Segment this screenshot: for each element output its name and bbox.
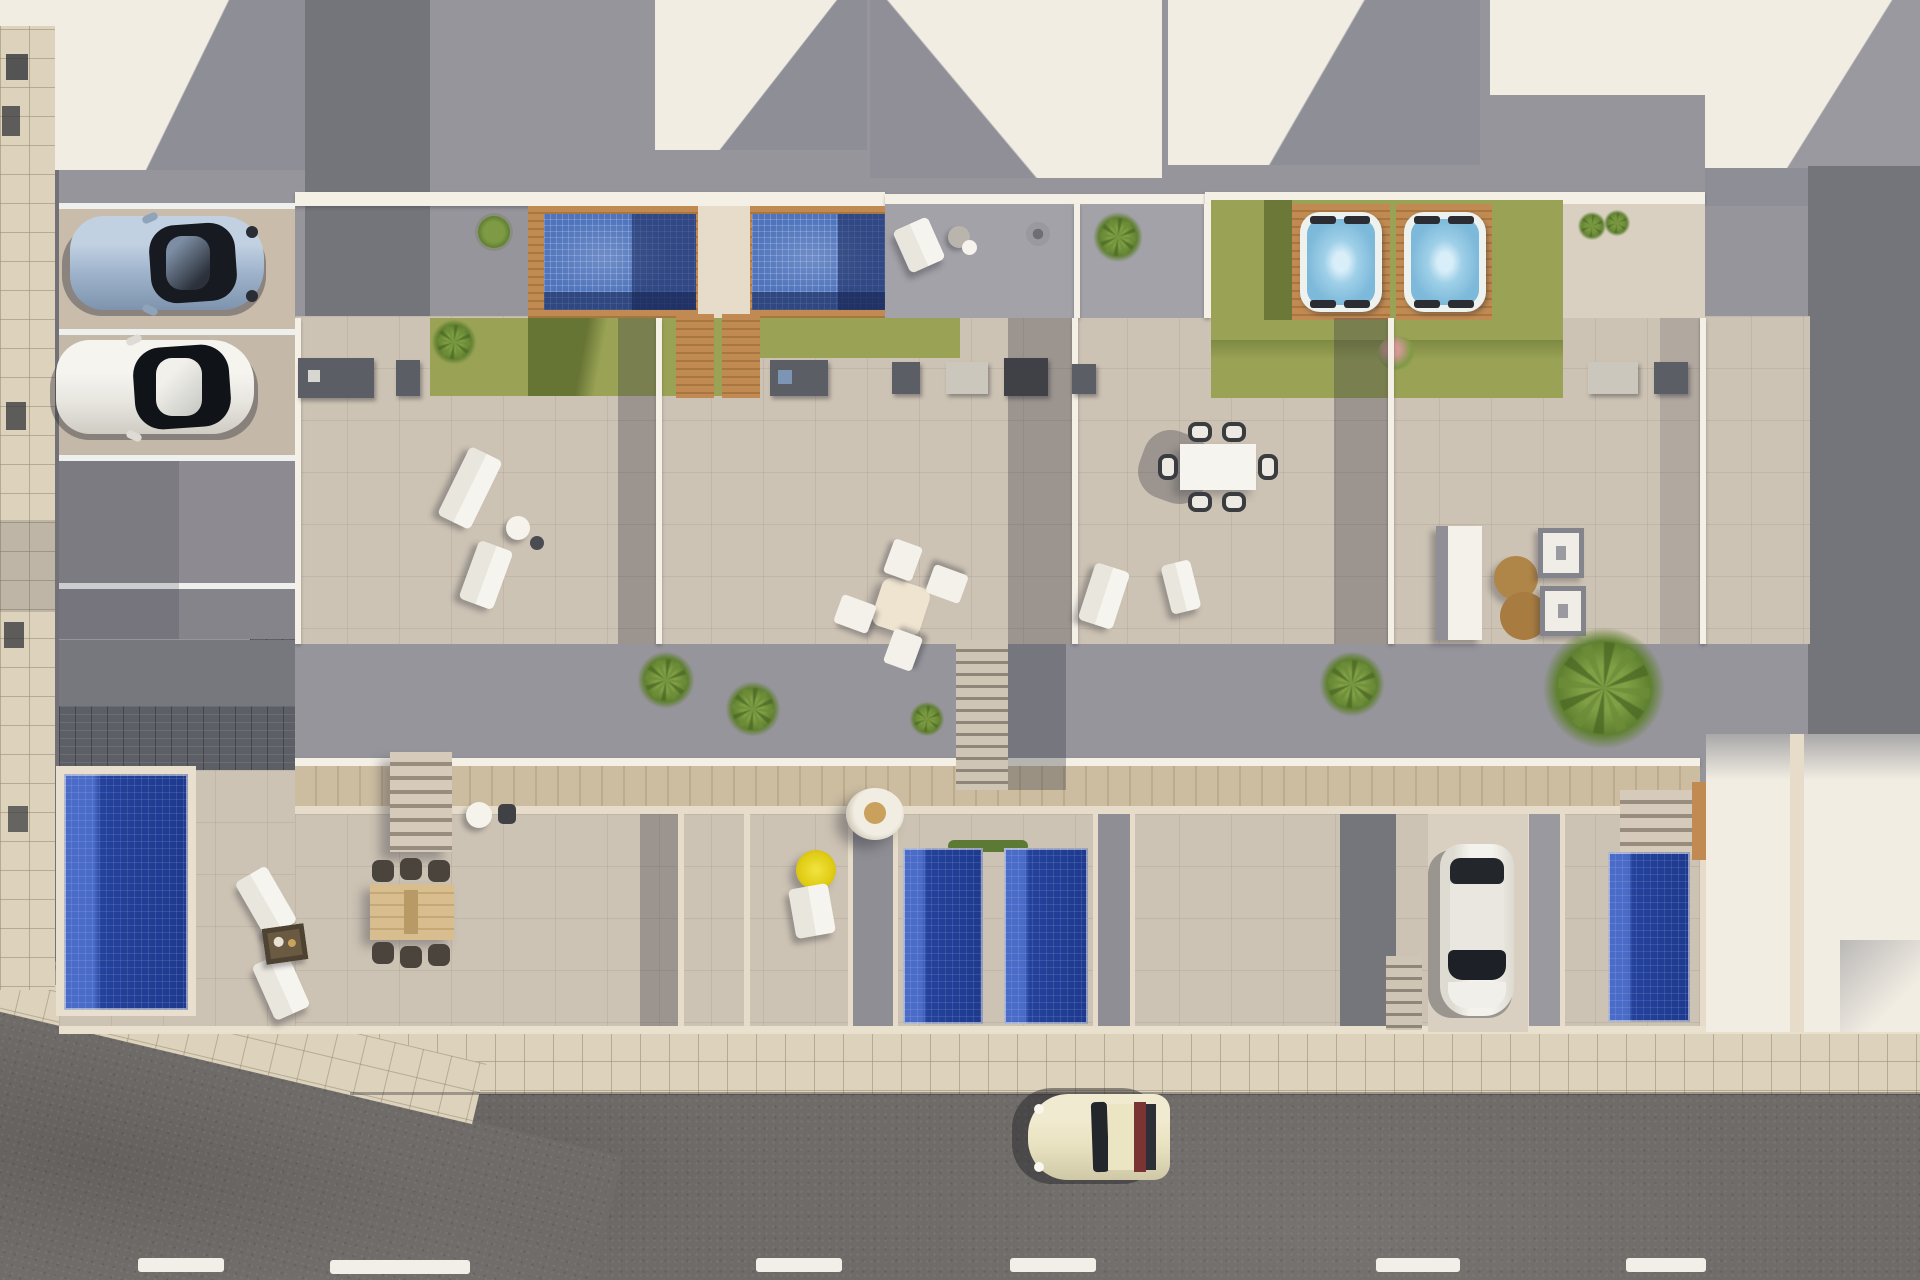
jacuzzi-headrest [1414, 216, 1440, 224]
lane-dash [1010, 1258, 1096, 1272]
kitchen-sink [778, 370, 792, 384]
left-patio-pavers [59, 706, 295, 772]
wall-shadow [0, 520, 55, 612]
roof-block-e [1490, 0, 1705, 95]
egg-chair-cushion [864, 802, 886, 824]
bistro-table [466, 802, 492, 828]
court-wall [678, 814, 684, 1026]
wall-vent [8, 806, 28, 832]
lawn-stairs [722, 314, 760, 398]
small-palm [1604, 210, 1630, 236]
stall-line [59, 329, 295, 335]
dining-chair [1222, 422, 1246, 442]
table-runner [404, 890, 418, 934]
stairs [390, 752, 452, 852]
terrace-bush [478, 216, 510, 248]
dining-chair [1188, 492, 1212, 512]
wall-vent [2, 106, 20, 136]
divider-wall-3-4 [1388, 318, 1394, 644]
jacuzzi-headrest [1310, 300, 1336, 308]
dining-chair [925, 564, 969, 605]
court-wall [1130, 814, 1135, 1026]
palm-plant [1320, 652, 1384, 716]
car-roof [156, 358, 202, 416]
jacuzzi-headrest [1414, 300, 1440, 308]
lane-dash [1626, 1258, 1706, 1272]
neighbor-channel [1790, 734, 1804, 1032]
roof-white-disc [962, 240, 977, 255]
court-shadow [640, 814, 678, 1026]
court-wall [893, 814, 898, 1026]
parking-shadow [59, 461, 179, 639]
dining-set-unit3 [1140, 414, 1270, 520]
court-passage [850, 814, 896, 1026]
court-wall [1093, 814, 1098, 1026]
roof-block-a [55, 0, 305, 170]
jacuzzi-headrest [1448, 216, 1474, 224]
wicker-chair [428, 860, 450, 882]
wicker-chair [372, 860, 394, 882]
court-passage [1526, 814, 1562, 1026]
dining-chair [883, 628, 924, 672]
roof-block-dark [305, 0, 430, 316]
car-hood [1448, 982, 1506, 1008]
neighbor-corner-shade [1840, 940, 1920, 1032]
jacuzzi-lawn-shadow [1264, 200, 1292, 320]
palm-plant [910, 702, 944, 736]
stall-line [59, 203, 295, 209]
hanging-egg-chair [846, 788, 904, 840]
divider-shadow-1-2 [618, 318, 658, 644]
roof-block-b [655, 0, 867, 150]
dining-chair [1222, 492, 1246, 512]
dining-chair [1188, 422, 1212, 442]
aerial-render [0, 0, 1920, 1280]
sidewalk [350, 1032, 1920, 1094]
dining-chair [1158, 454, 1178, 480]
outdoor-kitchen [1588, 362, 1638, 394]
palm-plant [638, 652, 694, 708]
lane-dash [138, 1258, 224, 1272]
small-palm [1578, 212, 1606, 240]
wood-dining-table [370, 884, 454, 940]
wicker-chair [400, 946, 422, 968]
canopy-chair [1538, 528, 1584, 578]
tray-cup [273, 936, 284, 947]
left-boundary-wall [0, 0, 55, 990]
left-wall-cap [0, 0, 55, 26]
car-headlight [1034, 1162, 1044, 1172]
roof-block-right [1705, 0, 1920, 170]
jacuzzi-water [1411, 219, 1479, 305]
wicker-chair [400, 858, 422, 880]
outdoor-kitchen [298, 358, 374, 398]
planter-pot [530, 536, 544, 550]
divider-shadow-3-4 [1334, 318, 1388, 644]
lane-dash [1376, 1258, 1460, 1272]
car-windshield [1091, 1102, 1109, 1173]
sun-lounger [788, 883, 836, 939]
roof-firepit [1026, 222, 1050, 246]
roof-bush [1094, 212, 1142, 262]
left-patio-dark [59, 640, 295, 712]
bbq-grill [396, 360, 420, 396]
dining-table [869, 575, 932, 638]
court-wall [848, 814, 853, 1026]
car-rear-stripe [1134, 1102, 1146, 1172]
car-roof [1108, 1104, 1134, 1170]
neighbor-shadow [1706, 734, 1920, 780]
lawn-stairs [676, 314, 714, 398]
side-table [506, 516, 530, 540]
jacuzzi-2 [1404, 212, 1486, 312]
parked-car-silver [70, 214, 264, 314]
wicker-chair [428, 944, 450, 966]
car-headlight [1034, 1104, 1044, 1114]
wall-vent [6, 54, 28, 80]
front-boundary-wall [59, 1026, 1920, 1034]
divider-wall-1-2 [656, 318, 662, 644]
court-wall [744, 814, 750, 1026]
outdoor-kitchen [946, 362, 988, 394]
canopy-chair [1540, 586, 1586, 636]
bbq-grill [892, 362, 920, 394]
plunge-pool [64, 774, 188, 1010]
wall-vent [6, 402, 26, 430]
dining-chair [883, 538, 924, 582]
car-roof [1450, 884, 1504, 950]
glass-kitchen-module [1004, 358, 1048, 396]
car-rear-window [1146, 1104, 1156, 1170]
court-wall [1560, 814, 1565, 1026]
roof-lawn-unit2 [745, 318, 960, 358]
bbq-grill [1654, 362, 1688, 394]
jacuzzi-headrest [1448, 300, 1474, 308]
dining-table [1180, 444, 1256, 490]
plunge-pool [1004, 848, 1088, 1024]
plunge-pool [1608, 852, 1690, 1022]
rooftop-pool-2-dark-end [752, 292, 902, 310]
stairs [956, 640, 1008, 790]
jacuzzi-headrest [1344, 216, 1370, 224]
parked-car-white [56, 338, 254, 438]
roof-block-c [870, 0, 1162, 178]
side-table-tray [262, 923, 309, 964]
unit4-right-wall [1700, 318, 1706, 644]
dining-chair [833, 594, 877, 635]
court-passage [1095, 814, 1133, 1026]
stairs [1620, 790, 1694, 854]
jacuzzi-1 [1300, 212, 1382, 312]
rooftop-pool-1-dark-end [544, 292, 696, 310]
car-roof-glass [166, 236, 210, 290]
driveway-car [1440, 844, 1518, 1018]
large-palm [1544, 628, 1664, 748]
tray-cup [287, 939, 296, 948]
wall-vent [4, 622, 24, 648]
bistro-chair [498, 804, 516, 824]
jacuzzi-headrest [1310, 216, 1336, 224]
kitchen-sink [308, 370, 320, 382]
plunge-pool [903, 848, 983, 1024]
lane-dash [330, 1260, 470, 1274]
parapet-wall [295, 192, 885, 206]
car-badge [246, 226, 258, 238]
car-badge [246, 290, 258, 302]
stairs [1386, 956, 1422, 1030]
lounge-sofa [1436, 526, 1482, 640]
dining-chair [1258, 454, 1278, 480]
adjacent-building-dark-roof [1808, 166, 1920, 736]
pool-divider-wall [698, 206, 750, 318]
car-windshield [1448, 950, 1506, 980]
roof-divider-wall [1204, 204, 1211, 318]
palm-plant [726, 682, 780, 736]
wicker-chair [372, 942, 394, 964]
lane-dash [756, 1258, 842, 1272]
outdoor-kitchen [770, 360, 828, 396]
jacuzzi-water [1307, 219, 1375, 305]
bbq-grill [1072, 364, 1096, 394]
road-car-cream [1028, 1094, 1170, 1182]
dining-set-unit2 [836, 540, 966, 670]
stairs-shadow [1008, 644, 1066, 790]
roof-divider-wall [1074, 204, 1080, 318]
car-rear-window [1450, 858, 1504, 884]
roof-block-d [1168, 0, 1480, 165]
lawn-bush [432, 320, 476, 364]
jacuzzi-headrest [1344, 300, 1370, 308]
